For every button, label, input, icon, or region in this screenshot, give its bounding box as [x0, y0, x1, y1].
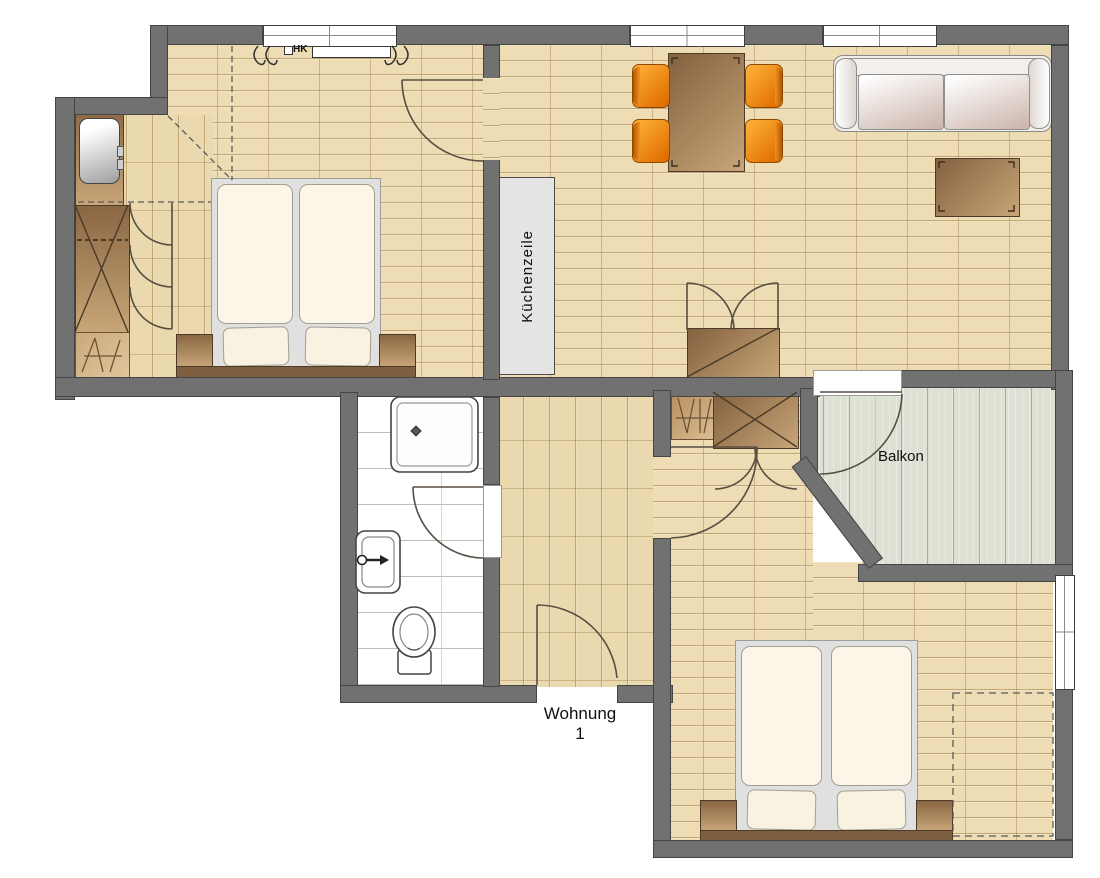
bathroom-fixtures [356, 397, 478, 674]
wardrobe-door-swings [130, 203, 172, 329]
radiator-label: HK [293, 44, 307, 55]
door-swings [130, 80, 902, 685]
apartment-label-line1: Wohnung [510, 704, 650, 724]
table-corner-ticks [672, 58, 1014, 211]
linework-overlay [0, 0, 1100, 878]
shower-tray [391, 397, 478, 472]
door-bedroom1 [402, 80, 483, 161]
dashed-diagonal-bedroom1 [168, 116, 232, 180]
bedroom1-shelf-hatch [82, 338, 122, 372]
curtain-left-icon [254, 46, 277, 64]
curtain-icons [254, 46, 408, 64]
dashed-planned-wardrobe [953, 693, 1053, 836]
living-closet-doors [687, 283, 778, 330]
toilet [393, 607, 435, 674]
living-closet-diagonal [687, 328, 778, 377]
balcony-label: Balkon [878, 448, 924, 465]
door-bedroom2 [671, 447, 757, 538]
floor-plan: Küchenzeile HK [0, 0, 1100, 878]
hall-shelf-hatch [676, 398, 713, 433]
door-apartment-entry [537, 605, 617, 685]
curtain-right-icon [385, 46, 408, 64]
apartment-label-line2: 1 [510, 724, 650, 744]
door-bathroom [413, 487, 483, 558]
wardrobe1-x [75, 205, 128, 332]
apartment-label: Wohnung 1 [510, 704, 650, 745]
hall-closet-x [713, 392, 797, 447]
